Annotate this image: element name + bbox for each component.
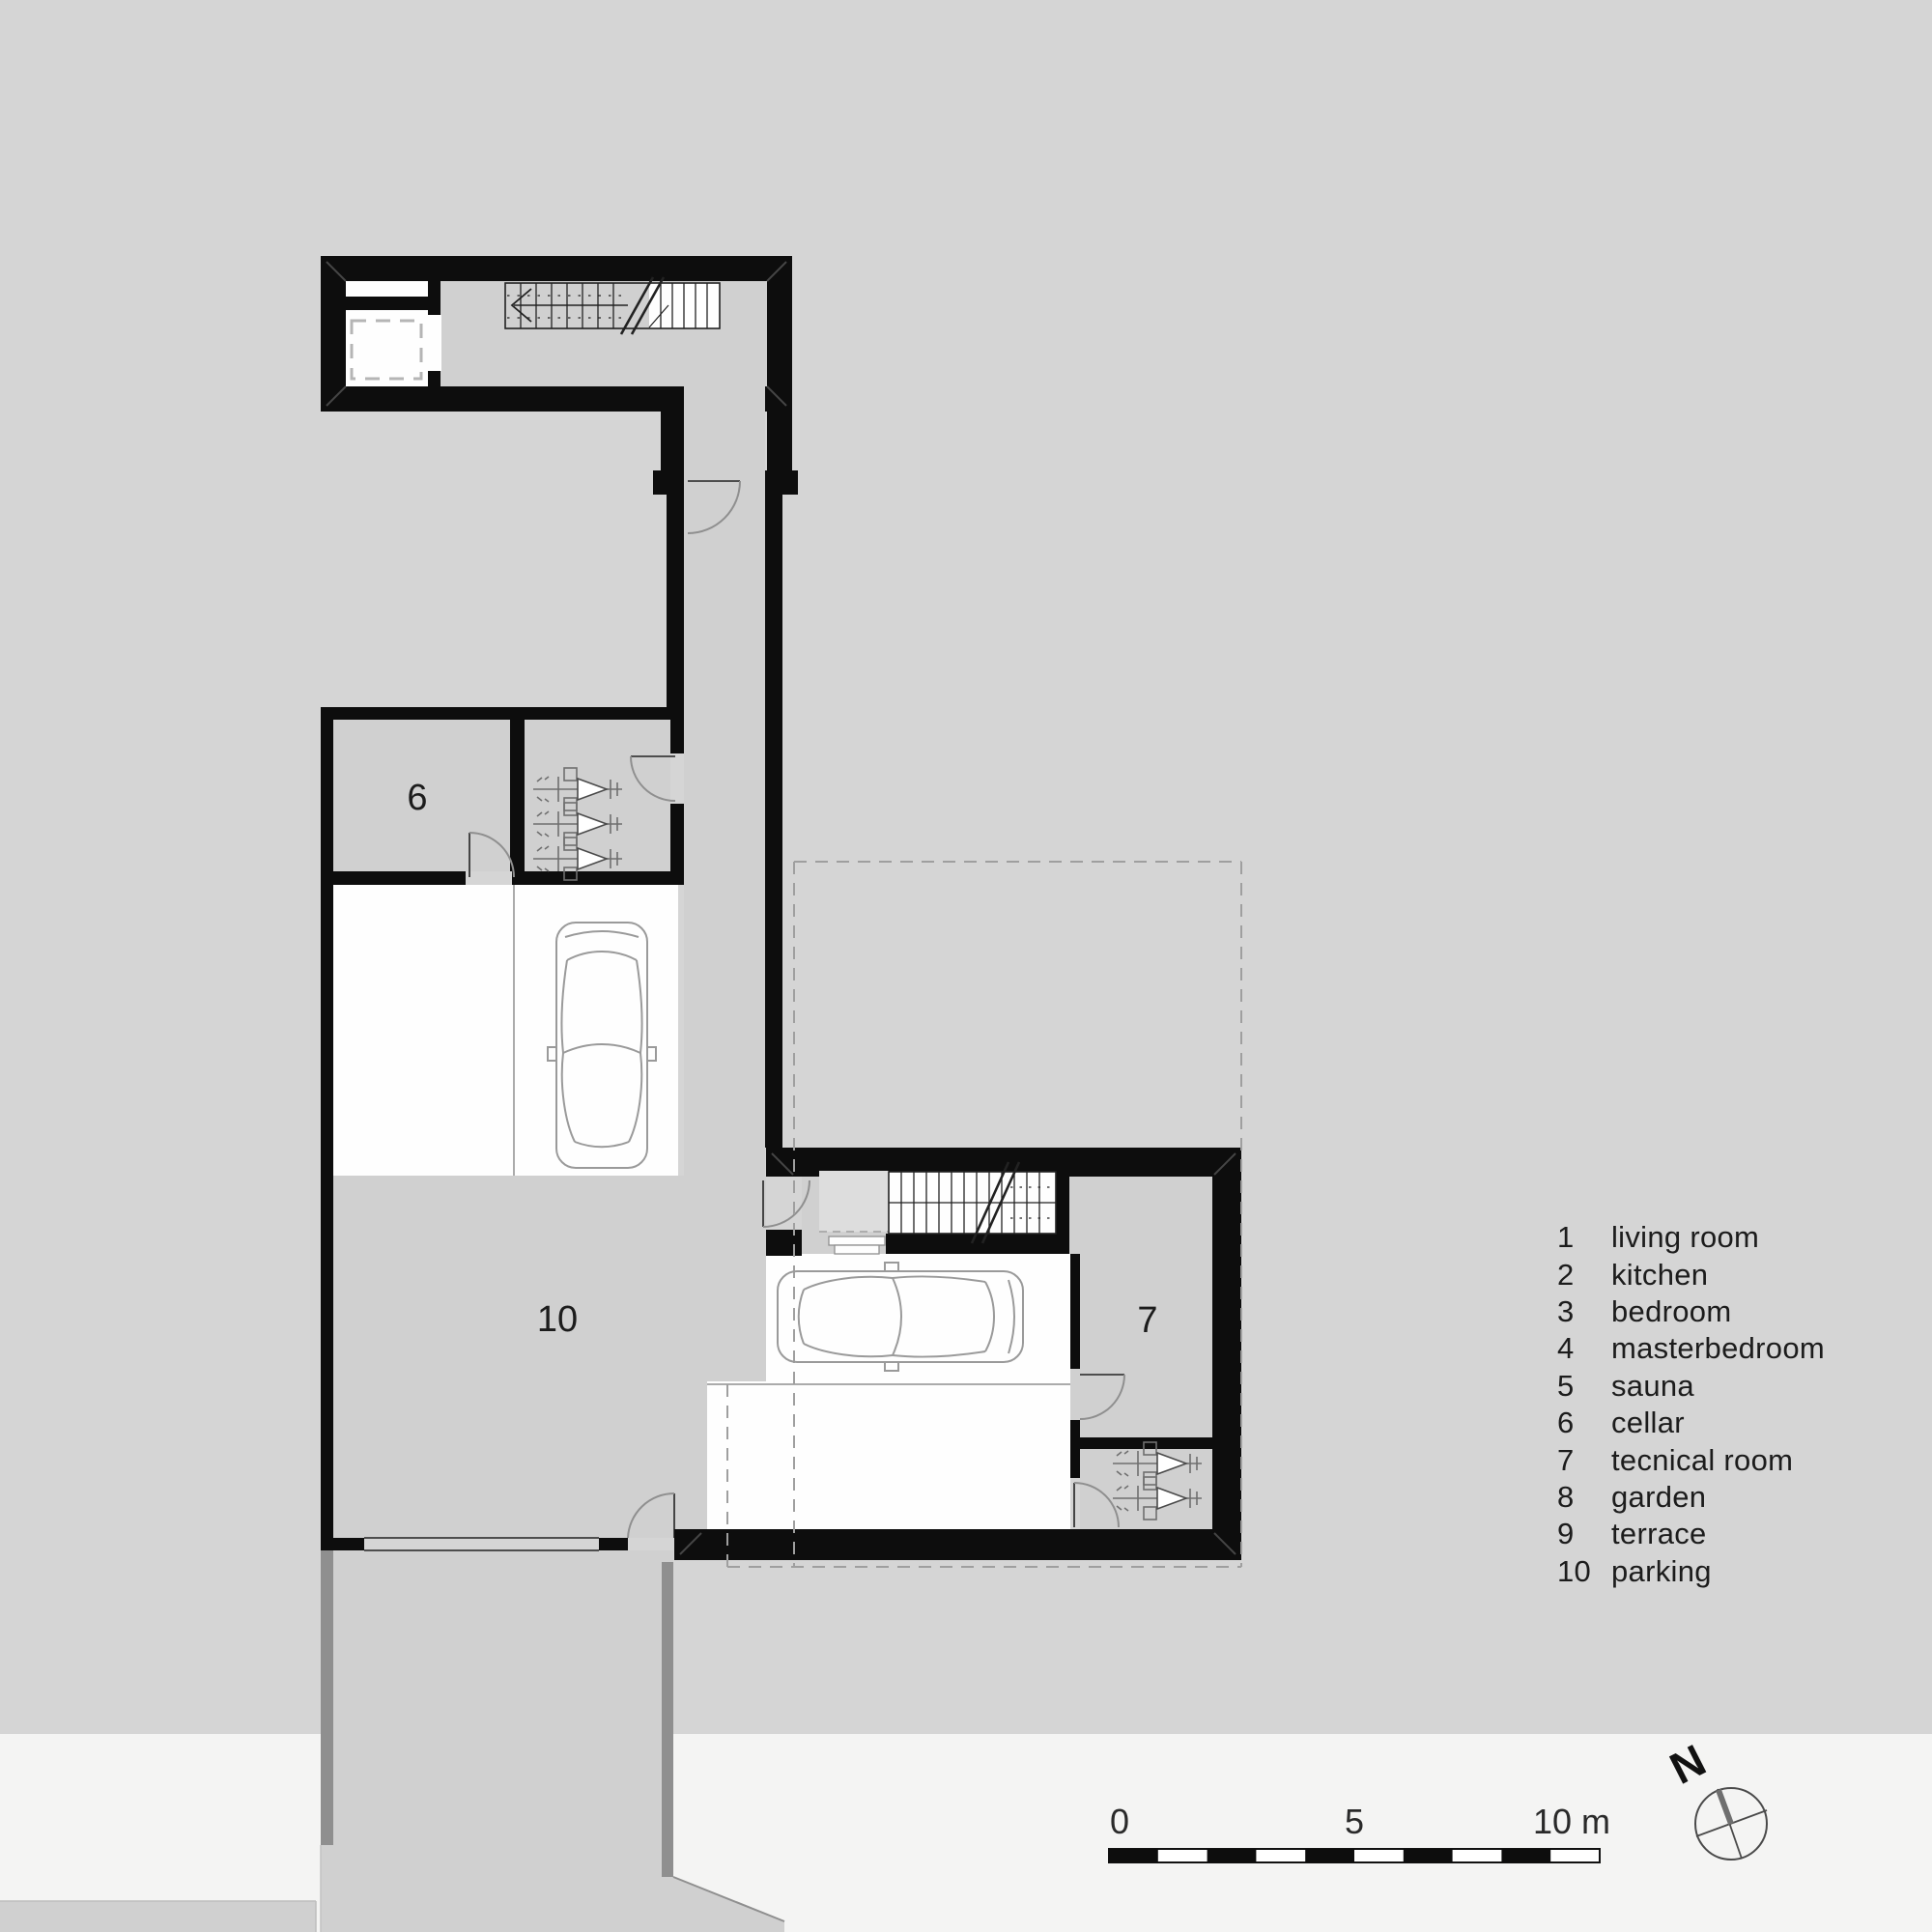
- corridor-wall-right-upper: [767, 412, 792, 470]
- cellar-bike-divider: [510, 720, 525, 871]
- legend-item: 3bedroom: [1557, 1293, 1825, 1330]
- legend-item: 10parking: [1557, 1553, 1825, 1590]
- shelf-divider-wall: [346, 297, 428, 310]
- legend-number: 8: [1557, 1480, 1611, 1515]
- room-label-parking: 10: [537, 1299, 578, 1340]
- legend-number: 1: [1557, 1220, 1611, 1255]
- floor-plan-drawing: 6 10 7 0 5 10 m N: [0, 0, 1932, 1932]
- door-jamb-right: [765, 470, 798, 495]
- floor-plan-page: 6 10 7 0 5 10 m N 1living room 2kitchen …: [0, 0, 1932, 1932]
- legend-label: sauna: [1611, 1369, 1694, 1404]
- scale-segment: [1305, 1849, 1354, 1862]
- bike-room-bottom-wall: [512, 871, 684, 885]
- corridor-opening: [684, 386, 765, 412]
- legend-label: masterbedroom: [1611, 1331, 1825, 1366]
- entry-step-2: [835, 1245, 879, 1254]
- driveway-wall-right: [662, 1562, 673, 1877]
- carport-floor: [333, 885, 678, 1176]
- legend-label: bedroom: [1611, 1294, 1731, 1329]
- corridor-wall-right: [765, 495, 782, 1148]
- lower-staircase: [889, 1162, 1056, 1243]
- driveway-surface: [321, 1550, 673, 1932]
- legend-item: 8garden: [1557, 1479, 1825, 1516]
- legend-number: 4: [1557, 1331, 1611, 1366]
- site-background: [0, 1734, 1932, 1932]
- room-label-technical: 7: [1137, 1300, 1157, 1341]
- legend-number: 7: [1557, 1443, 1611, 1478]
- lower-west-wall-stub: [766, 1230, 802, 1256]
- legend-number: 10: [1557, 1554, 1611, 1589]
- middle-left-wall: [321, 707, 333, 1550]
- legend-label: living room: [1611, 1220, 1759, 1255]
- scale-label-10m: 10 m: [1533, 1802, 1610, 1841]
- scale-segment: [1207, 1849, 1257, 1862]
- scale-segment: [1501, 1849, 1550, 1862]
- legend-number: 3: [1557, 1294, 1611, 1329]
- corridor-wall-left-upper: [661, 412, 684, 470]
- lower-bike-wall-stub: [1070, 1449, 1080, 1478]
- parking-court-floor: [333, 1176, 766, 1538]
- elevator-door-gap: [428, 315, 441, 371]
- scale-label-0: 0: [1110, 1802, 1129, 1841]
- legend-item: 6cellar: [1557, 1405, 1825, 1441]
- legend-item: 7tecnical room: [1557, 1441, 1825, 1478]
- under-stair-wall: [886, 1234, 1069, 1254]
- legend-item: 1living room: [1557, 1219, 1825, 1256]
- legend: 1living room 2kitchen 3bedroom 4masterbe…: [1557, 1219, 1825, 1590]
- legend-label: terrace: [1611, 1517, 1707, 1551]
- room-label-cellar: 6: [407, 778, 427, 818]
- corridor-floor: [684, 386, 765, 1176]
- legend-number: 2: [1557, 1258, 1611, 1293]
- garage-gate-opening: [364, 1538, 599, 1550]
- legend-label: cellar: [1611, 1406, 1685, 1440]
- cellar-bottom-wall: [321, 871, 466, 885]
- legend-item: 2kitchen: [1557, 1256, 1825, 1293]
- entry-vestibule: [819, 1171, 889, 1232]
- legend-number: 6: [1557, 1406, 1611, 1440]
- middle-top-wall: [321, 707, 684, 720]
- corridor-wall-left: [667, 495, 684, 707]
- lower-bottom-wall: [674, 1529, 1241, 1560]
- technical-left-wall: [1070, 1254, 1080, 1369]
- technical-bike-divider: [1070, 1437, 1212, 1449]
- court-bottom-wall-stub: [599, 1538, 628, 1550]
- bike-room-right-wall-lower: [670, 804, 684, 885]
- legend-label: garden: [1611, 1480, 1706, 1515]
- legend-number: 9: [1557, 1517, 1611, 1551]
- bike-room-right-wall-upper: [670, 707, 684, 753]
- sidewalk-corner: [0, 1901, 316, 1932]
- legend-item: 5sauna: [1557, 1368, 1825, 1405]
- legend-item: 4masterbedroom: [1557, 1330, 1825, 1367]
- lower-right-wall: [1212, 1148, 1241, 1560]
- scale-segment: [1404, 1849, 1453, 1862]
- scale-label-5: 5: [1345, 1802, 1364, 1841]
- legend-item: 9terrace: [1557, 1516, 1825, 1552]
- legend-label: parking: [1611, 1554, 1712, 1589]
- entry-step-1: [829, 1236, 885, 1245]
- door-jamb-left: [653, 470, 684, 495]
- scale-segment: [1109, 1849, 1158, 1862]
- court-bottom-wall-left: [321, 1538, 364, 1550]
- legend-label: tecnical room: [1611, 1443, 1793, 1478]
- legend-number: 5: [1557, 1369, 1611, 1404]
- driveway-wall-left: [321, 1550, 333, 1845]
- legend-label: kitchen: [1611, 1258, 1708, 1293]
